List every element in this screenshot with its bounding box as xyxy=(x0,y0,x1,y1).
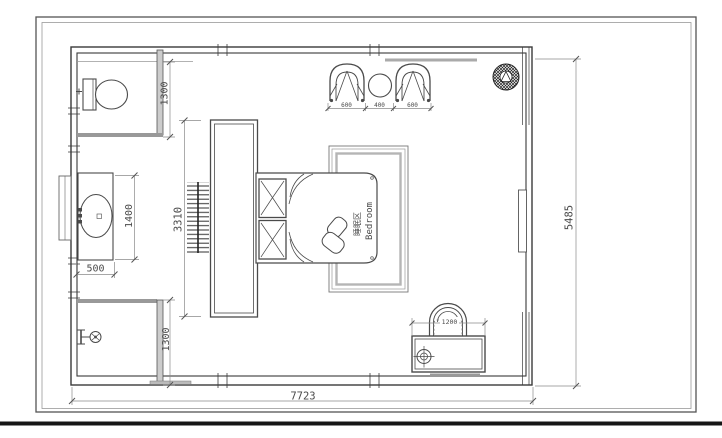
dim-text-armchair-left: 600 xyxy=(341,102,352,109)
dim-text-shower-depth: 1300 xyxy=(161,327,172,351)
dim-text-side-table: 400 xyxy=(374,102,385,109)
bathroom xyxy=(76,50,163,137)
dim-text-desk-width: 1200 xyxy=(442,318,458,326)
bed: 睡眠区 Bedroom xyxy=(256,173,377,263)
dim-room-depth: 5485 xyxy=(535,56,581,389)
desk-base-line xyxy=(430,374,480,378)
page-edge-line xyxy=(0,422,722,426)
tv-hatch-panel xyxy=(187,182,209,253)
plant-icon xyxy=(493,64,519,90)
dim-desk-width: 1200 xyxy=(410,317,488,336)
floor-plan-canvas: 睡眠区 Bedroom xyxy=(0,0,722,438)
zone-label-cn: 睡眠区 xyxy=(353,212,362,236)
left-window xyxy=(59,176,71,240)
dim-vanity-width: 500 xyxy=(74,262,118,278)
bathroom-threshold xyxy=(77,133,163,137)
dim-text-room-depth: 5485 xyxy=(564,205,576,230)
dim-text-room-width: 7723 xyxy=(290,391,315,403)
dim-text-vanity-width: 500 xyxy=(86,264,104,275)
dim-vanity-length: 1400 xyxy=(115,173,139,263)
side-table xyxy=(369,74,392,97)
dim-text-vanity-length: 1400 xyxy=(124,204,135,228)
shower-room xyxy=(77,299,191,385)
floor-plan-drawing: 睡眠区 Bedroom xyxy=(0,0,722,438)
desk xyxy=(412,304,485,378)
dim-text-armchair-right: 600 xyxy=(407,102,418,109)
dim-room-width: 7723 xyxy=(69,387,536,405)
toilet-icon xyxy=(76,79,128,110)
dim-text-bathroom-depth: 1300 xyxy=(160,81,171,105)
armchair-right xyxy=(396,64,430,102)
zone-label-en: Bedroom xyxy=(365,202,375,240)
shower-head-icon xyxy=(77,330,101,344)
curtain-line xyxy=(385,59,477,62)
dim-text-wardrobe-length: 3310 xyxy=(173,207,185,232)
armchair-left xyxy=(330,64,364,102)
right-wall-pilaster xyxy=(519,190,527,252)
faucet-icon xyxy=(79,208,83,224)
dim-armchair-group: 600 400 600 xyxy=(326,102,434,111)
shower-threshold xyxy=(77,299,157,303)
wardrobe xyxy=(211,120,258,317)
vanity-sink xyxy=(78,173,113,260)
